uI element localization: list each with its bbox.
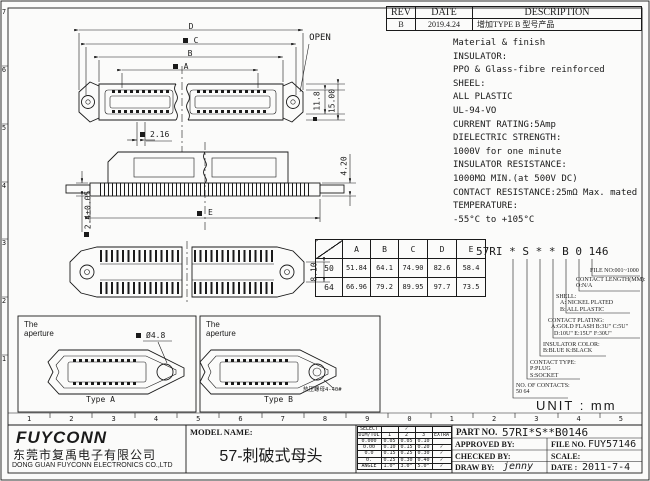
dim-label-118: 11.8 bbox=[313, 91, 322, 110]
dim-value: 79.2 bbox=[371, 278, 399, 297]
ruler-number: 6 bbox=[0, 66, 8, 124]
tol-cell: 0.05 bbox=[398, 438, 415, 444]
aperture-note-a: The aperture bbox=[24, 320, 54, 338]
callout-line: A:GOLD FLASH B:3U" C:5U" bbox=[548, 324, 628, 330]
ruler-number: 4 bbox=[0, 182, 8, 240]
callout-no-of-contacts: NO. OF CONTACTS: 50 64 bbox=[516, 383, 570, 396]
note-line: CONTACT RESISTANCE:25mΩ Max. mated bbox=[453, 187, 637, 201]
contact-teeth bbox=[100, 282, 182, 294]
callout-contact-length: CONTACT LENGTH(MM): O:N/A bbox=[576, 277, 646, 290]
company-name-cn: 东莞市复禹电子有限公司 bbox=[13, 446, 156, 463]
dim-value: 82.6 bbox=[428, 259, 457, 278]
tol-cell: 0.40 bbox=[415, 457, 432, 463]
aperture-note-b: The aperture bbox=[206, 320, 236, 338]
type-b-caption: Type B bbox=[264, 395, 293, 404]
tol-cell: ✓ bbox=[432, 463, 451, 469]
ruler-number: 2 bbox=[50, 414, 92, 424]
contact-teeth bbox=[197, 90, 269, 93]
contact-teeth bbox=[73, 359, 139, 362]
rev-description: 增加TYPE B 型号产品 bbox=[473, 19, 642, 31]
note-line: ALL PLASTIC bbox=[453, 91, 637, 105]
ruler-number: 4 bbox=[135, 414, 177, 424]
datum-square bbox=[140, 132, 145, 137]
left-ruler: 7 6 5 4 3 2 1 bbox=[0, 8, 8, 413]
revision-table: REV DATE DESCRIPTION B 2019.4.24 增加TYPE … bbox=[386, 6, 642, 31]
ruler-number: 5 bbox=[0, 124, 8, 182]
note-line: CURRENT RATING:5Amp bbox=[453, 119, 637, 133]
datum-square bbox=[136, 333, 141, 338]
date-value: 2011-7-4 bbox=[582, 462, 630, 473]
ruler-number: 2 bbox=[473, 414, 515, 424]
note-line: UL-94-VO bbox=[453, 105, 637, 119]
note-line: TEMPERATURE: bbox=[453, 200, 637, 214]
note-line: SHEEL: bbox=[453, 78, 637, 92]
callout-line: O:N/A bbox=[576, 283, 646, 289]
callout-shell: SHELL: A: NICKEL PLATED B: ALL PLASTIC bbox=[556, 294, 613, 313]
ruler-number: 3 bbox=[93, 414, 135, 424]
unit-note: UNIT : mm bbox=[536, 398, 617, 413]
dim-value: 89.95 bbox=[399, 278, 428, 297]
date-header: DATE bbox=[416, 7, 473, 19]
tol-cell: 0.10 bbox=[415, 438, 432, 444]
dim-label-b: B bbox=[188, 49, 193, 58]
callout-line: B: ALL PLASTIC bbox=[556, 307, 613, 313]
ruler-number: 2 bbox=[0, 297, 8, 355]
tol-cell: 5.0° bbox=[415, 463, 432, 469]
dim-label-e: E bbox=[208, 208, 213, 217]
note-line: DIELECTRIC STRENGTH: bbox=[453, 132, 637, 146]
callout-line: A: NICKEL PLATED bbox=[556, 300, 613, 306]
callout-contact-plating: CONTACT PLATING: A:GOLD FLASH B:3U" C:5U… bbox=[548, 318, 628, 337]
ruler-number: 3 bbox=[0, 239, 8, 297]
model-name-label: MODEL NAME: bbox=[190, 427, 253, 437]
rev-header: REV bbox=[387, 7, 416, 19]
file-no-value: FUY57146 bbox=[588, 439, 636, 450]
dim-row-label: 50 bbox=[316, 259, 343, 278]
ruler-number: 4 bbox=[557, 414, 599, 424]
contact-teeth bbox=[225, 382, 291, 385]
datum-square bbox=[183, 38, 188, 43]
tol-col-header: EXTRA bbox=[432, 432, 451, 438]
note-line: 1000MΩ MIN.(at 500V DC) bbox=[453, 173, 637, 187]
dim-label-1500: 15.00 bbox=[328, 89, 337, 113]
dim-col-header: C bbox=[399, 240, 428, 259]
ruler-number: 9 bbox=[346, 414, 388, 424]
dim-value: 58.4 bbox=[457, 259, 486, 278]
callout-line: B:BLUE K:BLACK bbox=[543, 348, 600, 354]
datum-square bbox=[84, 232, 89, 237]
contact-teeth bbox=[73, 382, 139, 385]
date-label: DATE : bbox=[551, 463, 577, 472]
callout-line: FILE NO:001~1000 bbox=[590, 268, 639, 274]
dim-value: 66.96 bbox=[343, 278, 371, 297]
note-line: INSULATOR: bbox=[453, 51, 637, 65]
tol-cell: 0.30 bbox=[398, 457, 415, 463]
file-no-label: FILE NO. bbox=[551, 440, 586, 449]
dim-label-dia48: Ø4.8 bbox=[146, 331, 165, 340]
ruler-number: 6 bbox=[219, 414, 261, 424]
dim-value: 73.5 bbox=[457, 278, 486, 297]
tol-cell: 1.0° bbox=[381, 463, 398, 469]
tol-cell: 0.15 bbox=[398, 445, 415, 451]
dim-col-header: B bbox=[371, 240, 399, 259]
dim-label-d: D bbox=[189, 22, 194, 31]
dim-label-a: A bbox=[184, 62, 189, 71]
part-code: 57RI * S * * B 0 146 bbox=[476, 245, 608, 258]
scale-label: SCALE: bbox=[551, 452, 580, 461]
dim-value: 51.84 bbox=[343, 259, 371, 278]
dim-value: 97.7 bbox=[428, 278, 457, 297]
ruler-number: 7 bbox=[0, 8, 8, 66]
rev-date: 2019.4.24 bbox=[416, 19, 473, 31]
model-name: 57-刺破式母头 bbox=[219, 442, 322, 466]
note-line: PPO & Glass-fibre reinforced bbox=[453, 64, 637, 78]
callout-line: D:10U" E:15U" F:30U" bbox=[548, 331, 628, 337]
tolerance-table: SELECT ✓ DIM/TOL 1 2 3 EXTRA 0.000 0.05 … bbox=[357, 426, 452, 470]
company-name-en: DONG GUAN FUYCONN ELECTRONICS CO.,LTD bbox=[12, 462, 173, 469]
tol-cell: 0.05 bbox=[381, 438, 398, 444]
contact-pins bbox=[100, 183, 310, 196]
draw-by-value: jenny bbox=[503, 461, 533, 472]
tol-cell: 0.15 bbox=[381, 451, 398, 457]
ruler-number: 5 bbox=[177, 414, 219, 424]
tol-cell: 0.30 bbox=[415, 451, 432, 457]
bottom-ruler: 1 2 3 4 5 6 7 8 9 0 1 2 3 4 5 bbox=[8, 414, 642, 424]
datum-square bbox=[173, 64, 178, 69]
datum-square bbox=[197, 211, 202, 216]
material-finish-notes: Material & finish INSULATOR: PPO & Glass… bbox=[453, 37, 637, 227]
callout-insulator-color: INSULATOR COLOR: B:BLUE K:BLACK bbox=[543, 342, 600, 355]
ruler-number: 0 bbox=[388, 414, 430, 424]
checked-by-label: CHECKED BY: bbox=[455, 452, 511, 461]
nut-note: 热压螺母4-40# bbox=[303, 385, 342, 393]
tol-cell: 0.10 bbox=[381, 445, 398, 451]
tol-cell: 3.0° bbox=[398, 463, 415, 469]
dimension-table: A B C D E 50 51.84 64.1 74.90 82.6 58.4 … bbox=[315, 239, 486, 297]
tol-cell: 0.25 bbox=[398, 451, 415, 457]
note-line: 1000V for one minute bbox=[453, 146, 637, 160]
tol-select-label: SELECT bbox=[357, 426, 381, 432]
dim-value: 74.90 bbox=[399, 259, 428, 278]
tol-dim-label: DIM/TOL bbox=[357, 432, 381, 438]
company-logo: FUYCONN bbox=[16, 428, 107, 448]
note-line: INSULATOR RESISTANCE: bbox=[453, 159, 637, 173]
rev-value: B bbox=[387, 19, 416, 31]
ruler-number: 8 bbox=[304, 414, 346, 424]
note-line: -55°C to +105°C bbox=[453, 214, 637, 228]
dim-col-header: A bbox=[343, 240, 371, 259]
contact-teeth bbox=[197, 110, 269, 113]
ruler-number: 1 bbox=[0, 355, 8, 413]
draw-by-label: DRAW BY: bbox=[455, 463, 494, 472]
dim-label-420: 4.20 bbox=[340, 156, 349, 175]
callout-line: S:SOCKET bbox=[530, 373, 576, 379]
tol-cell: 0.25 bbox=[381, 457, 398, 463]
ruler-number: 3 bbox=[515, 414, 557, 424]
contact-teeth bbox=[112, 110, 170, 113]
dim-row-label: 64 bbox=[316, 278, 343, 297]
callout-contact-type: CONTACT TYPE: P:PLUG S:SOCKET bbox=[530, 360, 576, 379]
contact-teeth bbox=[194, 282, 274, 294]
ruler-number: 1 bbox=[8, 414, 50, 424]
drawing-sheet: { "frame": { "left_ruler": ["7","6","5",… bbox=[0, 0, 650, 481]
dim-table-corner bbox=[316, 240, 343, 259]
ruler-number: 1 bbox=[431, 414, 473, 424]
dim-label-216: 2.16 bbox=[150, 130, 169, 139]
ruler-number: 7 bbox=[262, 414, 304, 424]
description-header: DESCRIPTION bbox=[473, 7, 642, 19]
dim-col-header: D bbox=[428, 240, 457, 259]
callout-file-no: FILE NO:001~1000 bbox=[590, 268, 639, 274]
tol-cell: ANGLE bbox=[357, 463, 381, 469]
part-no-value: 57RI*S**B0146 bbox=[502, 426, 588, 439]
callout-line: 50 64 bbox=[516, 389, 570, 395]
datum-square bbox=[313, 117, 317, 121]
tol-cell: 0.20 bbox=[415, 445, 432, 451]
note-line: Material & finish bbox=[453, 37, 637, 51]
contact-teeth bbox=[194, 250, 274, 262]
contact-teeth bbox=[225, 359, 291, 362]
contact-teeth bbox=[100, 250, 182, 262]
dim-label-24: 2.4±0.05 bbox=[84, 191, 93, 230]
contact-teeth bbox=[112, 90, 170, 93]
approved-by-label: APPROVED BY: bbox=[455, 440, 514, 449]
open-label: OPEN bbox=[309, 33, 331, 43]
dim-value: 64.1 bbox=[371, 259, 399, 278]
part-no-label: PART NO. bbox=[456, 427, 497, 437]
dim-label-c: C bbox=[194, 36, 199, 45]
ruler-number: 5 bbox=[600, 414, 642, 424]
type-a-caption: Type A bbox=[86, 395, 115, 404]
